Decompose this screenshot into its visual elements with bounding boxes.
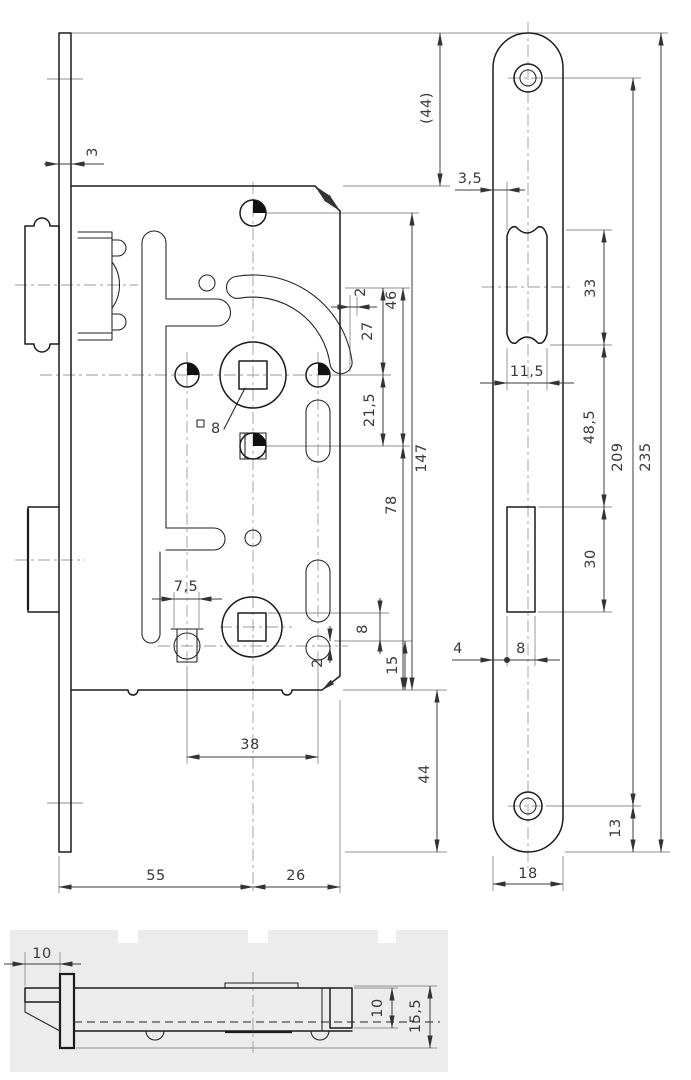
leader-line — [224, 388, 245, 429]
dim-27-label: 27 — [360, 321, 376, 340]
latch-cutout — [507, 227, 547, 344]
dimension-labels: 3 (44) 2 46 27 21,5 147 78 8 7,5 8 2 15 … — [32, 92, 654, 1033]
dim-33-label: 33 — [583, 278, 599, 297]
dim-55-label: 55 — [146, 868, 165, 884]
square-symbol-icon — [197, 420, 204, 427]
deadbolt — [28, 507, 59, 612]
dim-78-label: 78 — [384, 495, 400, 514]
dim-209-label: 209 — [610, 442, 626, 471]
cam-arc-slot — [227, 275, 353, 374]
dim-7-5-label: 7,5 — [174, 579, 199, 595]
spindle-hub — [197, 342, 286, 429]
dim-18-label: 18 — [518, 866, 537, 882]
dim-44-label: 44 — [417, 764, 433, 783]
dim-147-label: 147 — [414, 443, 430, 472]
dim-46-label: 46 — [384, 290, 400, 309]
dim-4-label: 4 — [453, 641, 463, 657]
dim-48-5-label: 48,5 — [582, 410, 598, 444]
dim-8r-label: 8 — [516, 641, 526, 657]
deadbolt-cutout — [507, 507, 535, 612]
datum-dot — [504, 657, 510, 663]
drawing-canvas: 3 (44) 2 46 27 21,5 147 78 8 7,5 8 2 15 … — [0, 0, 691, 1080]
dim-square8-label: 8 — [211, 421, 221, 437]
dim-3-5-label: 3,5 — [458, 171, 483, 187]
dim-30-label: 30 — [583, 549, 599, 568]
dim-2low-label: 2 — [310, 658, 326, 668]
dim-3-label: 3 — [85, 147, 101, 157]
dim-10right-label: 10 — [370, 998, 386, 1017]
dim-2top-label: 2 — [353, 287, 369, 297]
dim-11-5-label: 11,5 — [510, 364, 544, 380]
dim-38-label: 38 — [240, 737, 259, 753]
front-view — [25, 33, 352, 852]
small-hole-upper — [199, 275, 215, 291]
dim-235-label: 235 — [638, 442, 654, 471]
dim-13-label: 13 — [608, 818, 624, 837]
centerlines — [15, 22, 574, 1056]
dim-10left-label: 10 — [32, 946, 51, 962]
dim-15-label: 15 — [385, 655, 401, 674]
faceplate-edge-strip — [59, 33, 71, 852]
lock-technical-drawing: 3 (44) 2 46 27 21,5 147 78 8 7,5 8 2 15 … — [0, 0, 691, 1080]
dim-8-label: 8 — [355, 624, 371, 634]
case-outline — [71, 186, 340, 695]
dim-15-5-label: 15,5 — [408, 999, 424, 1033]
dim-26-label: 26 — [286, 868, 305, 884]
dim-44aux-label: (44) — [419, 92, 435, 124]
dim-21-5-label: 21,5 — [362, 393, 378, 427]
